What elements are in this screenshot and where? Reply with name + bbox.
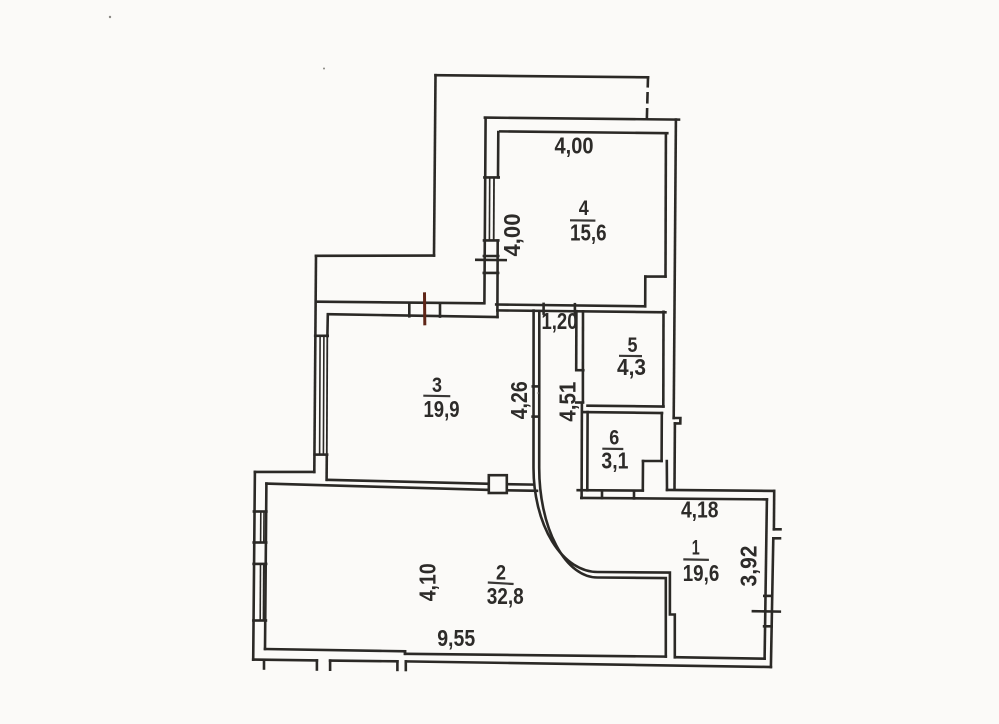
svg-text:4,00: 4,00 <box>499 214 525 257</box>
svg-text:6: 6 <box>609 426 619 449</box>
svg-text:3: 3 <box>432 374 442 397</box>
svg-text:1: 1 <box>692 537 700 560</box>
svg-text:4,51: 4,51 <box>555 382 581 422</box>
svg-text:4: 4 <box>579 197 589 220</box>
svg-text:19,9: 19,9 <box>424 396 460 422</box>
svg-text:19,6: 19,6 <box>683 560 720 586</box>
svg-text:4,10: 4,10 <box>415 563 441 601</box>
svg-text:2: 2 <box>496 561 506 584</box>
svg-text:1,20: 1,20 <box>542 308 578 334</box>
svg-text:4,26: 4,26 <box>506 381 532 419</box>
svg-text:4,18: 4,18 <box>681 497 719 523</box>
svg-text:3,1: 3,1 <box>601 448 628 474</box>
svg-text:4,00: 4,00 <box>555 133 594 159</box>
svg-text:15,6: 15,6 <box>570 220 607 246</box>
svg-text:4,3: 4,3 <box>617 354 646 380</box>
svg-text:32,8: 32,8 <box>487 583 524 609</box>
svg-text:9,55: 9,55 <box>437 625 475 651</box>
svg-text:3,92: 3,92 <box>736 546 762 587</box>
